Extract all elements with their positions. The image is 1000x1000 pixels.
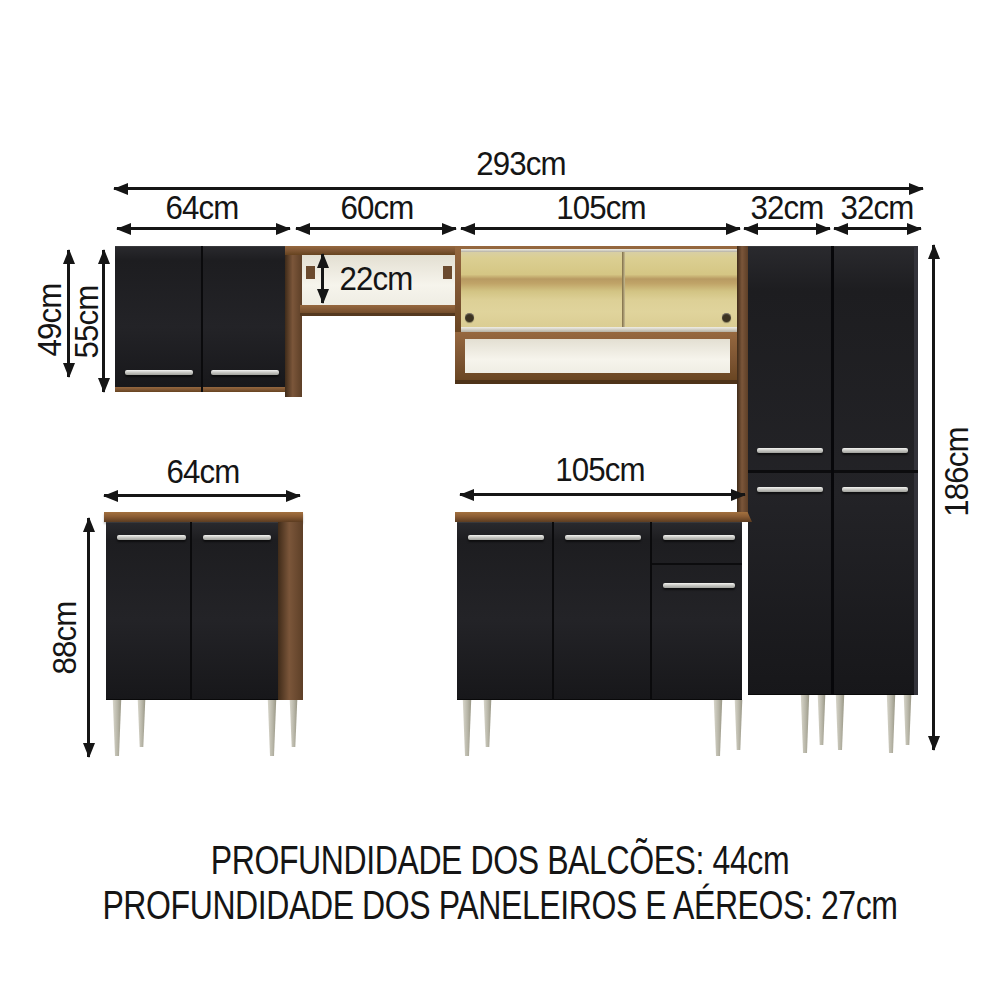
cabinet-leg (817, 695, 826, 745)
door-handle (663, 583, 735, 588)
dim-upper-shelf-width-label: 60cm (341, 188, 414, 227)
cabinet-leg (835, 695, 845, 750)
glass-door-gap (622, 252, 625, 327)
base-cabinet-middle (457, 522, 742, 700)
shelf-unit-left-pillar (285, 246, 302, 397)
cabinet-leg (137, 700, 146, 747)
base-left-door-gap (190, 522, 192, 700)
dim-base-height-arrow (87, 518, 90, 757)
tall-left-door-split (748, 470, 831, 473)
door-handle (565, 535, 641, 540)
door-handle (468, 535, 544, 540)
cabinet-leg (903, 695, 912, 745)
dim-shelf-opening-label: 22cm (340, 259, 413, 298)
base-cabinet-left (106, 522, 278, 700)
dim-base-left-width-label: 64cm (167, 452, 240, 491)
base-middle-countertop (455, 512, 752, 522)
cabinet-leg (289, 700, 298, 747)
dim-upper-shelf-width-arrow (296, 227, 456, 230)
dim-tall-left-width-arrow (744, 227, 830, 230)
kitchen-dimension-diagram: 293cm 64cm 60cm 105cm 32cm 32cm 49cm 55c… (0, 0, 1000, 1000)
dim-shelf-opening-arrow (321, 254, 324, 303)
dim-base-height-label: 88cm (45, 602, 84, 675)
shelf-bracket (306, 266, 315, 279)
dim-upper-left-width-label: 64cm (166, 188, 239, 227)
base-middle-door-gap (552, 522, 554, 700)
dim-tall-height-label: 186cm (937, 427, 976, 516)
dim-upper-glass-width-arrow (461, 227, 740, 230)
tall-right-door-split (834, 470, 918, 473)
door-handle (211, 370, 279, 375)
glass-cabinet-open-shelf (465, 339, 730, 373)
dim-tall-right-width-label: 32cm (841, 188, 914, 227)
dim-upper-door-height-label: 49cm (30, 284, 69, 357)
dim-upper-cabinet-height-label: 55cm (67, 286, 106, 359)
shelf-unit-bottom (300, 305, 455, 316)
dim-tall-height-arrow (932, 245, 935, 750)
dim-base-middle-width-label: 105cm (555, 450, 644, 489)
depth-note-pantries: PROFUNDIDADE DOS PANELEIROS E AÉREOS: 27… (100, 883, 900, 928)
dim-base-middle-width-arrow (460, 493, 745, 496)
dim-tall-right-width-arrow (834, 227, 921, 230)
dim-upper-glass-width-label: 105cm (556, 188, 645, 227)
base-left-countertop (104, 512, 303, 522)
wall-cabinet-left-bottom-edge (115, 387, 285, 392)
depth-note-counters: PROFUNDIDADE DOS BALCÕES: 44cm (100, 838, 900, 883)
base-left-side-panel (278, 522, 303, 700)
cabinet-leg (713, 700, 723, 756)
cabinet-leg (800, 695, 810, 753)
dim-total-width-label: 293cm (476, 144, 565, 183)
glass-door-knob (722, 313, 731, 322)
door-handle (757, 487, 823, 492)
wall-cabinet-left-door-gap (201, 246, 203, 392)
cabinet-leg (483, 700, 492, 747)
base-middle-door-gap (650, 522, 652, 700)
door-handle (842, 487, 908, 492)
cabinet-leg (112, 700, 122, 756)
door-handle (757, 448, 823, 453)
door-handle (125, 370, 193, 375)
glass-door-left (461, 252, 623, 327)
cabinet-leg (267, 700, 277, 756)
door-handle (203, 535, 271, 540)
cabinet-leg (886, 695, 896, 753)
base-middle-drawer-split (652, 563, 742, 565)
glass-door-knob (465, 313, 474, 322)
door-handle (842, 448, 908, 453)
dim-base-left-width-arrow (104, 494, 300, 497)
cabinet-leg (462, 700, 472, 756)
shelf-unit-top (285, 246, 455, 255)
door-handle (117, 535, 186, 540)
tall-cabinet-side-panel (737, 246, 748, 515)
shelf-bracket (443, 266, 452, 279)
dim-upper-left-width-arrow (117, 227, 290, 230)
cabinet-leg (734, 700, 743, 750)
drawer-handle (663, 535, 735, 540)
dim-tall-left-width-label: 32cm (751, 188, 824, 227)
